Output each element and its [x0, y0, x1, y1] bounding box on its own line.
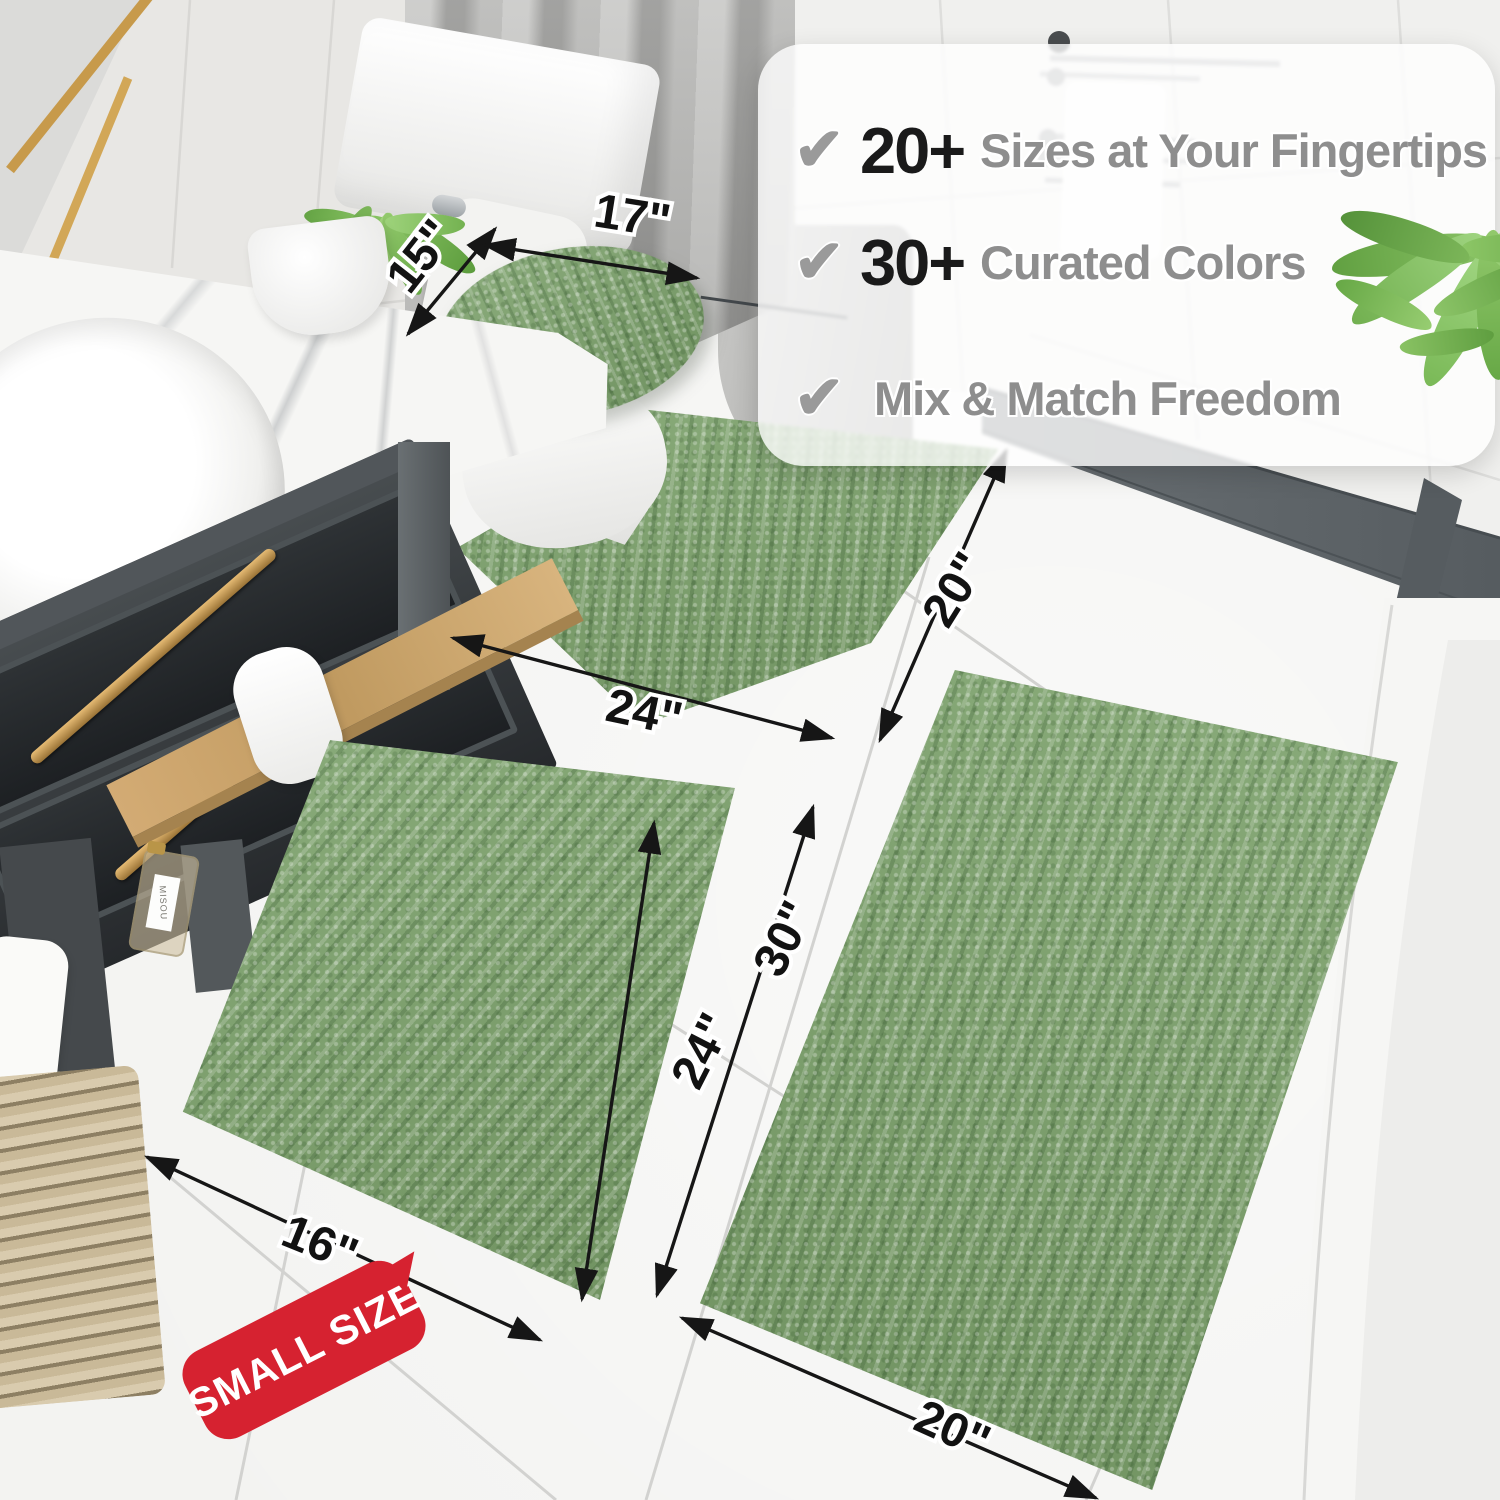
feature-number: 20+ [860, 113, 980, 188]
dim-line-lid-length [485, 245, 697, 278]
feature-label: Mix & Match Freedom [874, 371, 1341, 426]
dim-label-large-rug-width: 20" [907, 1390, 998, 1469]
feature-row: ✔ 30+ Curated Colors [794, 226, 1306, 298]
dim-label-lid-width: 15" [376, 210, 465, 303]
check-icon: ✔ [794, 232, 860, 292]
dim-label-contour-length: 24" [601, 679, 687, 747]
feature-label: Curated Colors [980, 235, 1306, 290]
dim-label-lid-length: 17" [591, 185, 675, 249]
check-icon: ✔ [794, 120, 860, 180]
dim-line-small-rug-length [582, 823, 654, 1299]
bathroom-product-image: MISOU 15" [0, 0, 1500, 1500]
dim-label-small-rug-length: 24" [661, 1005, 743, 1097]
corner-plant [1285, 85, 1500, 395]
check-icon: ✔ [794, 368, 860, 428]
dim-line-large-rug-width [682, 1318, 1096, 1498]
dim-label-large-rug-length: 30" [743, 893, 825, 985]
dim-label-contour-depth: 20" [912, 543, 997, 636]
feature-row: ✔ Mix & Match Freedom [794, 362, 1341, 434]
feature-number: 30+ [860, 225, 980, 300]
